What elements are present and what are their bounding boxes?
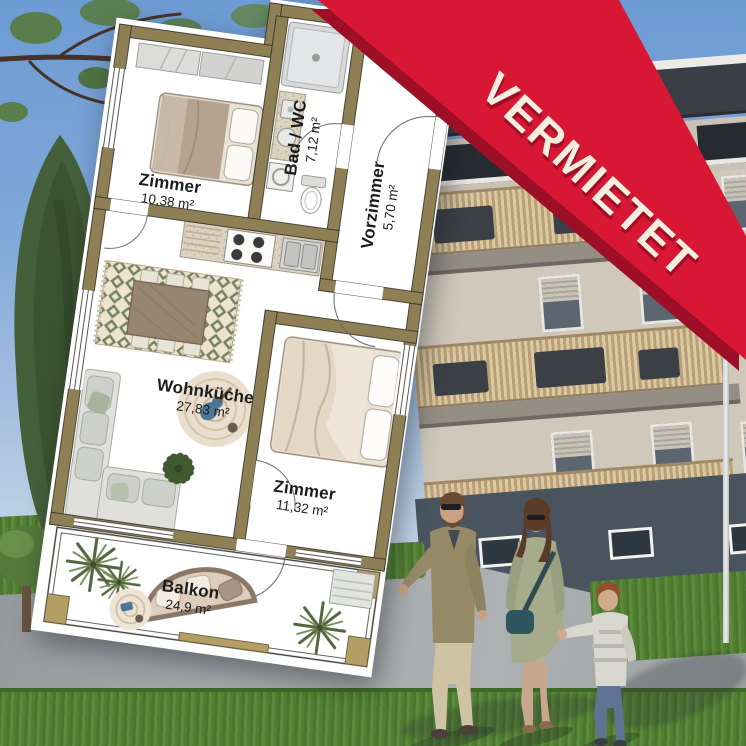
man-figure [398,492,487,739]
lamp-post [723,348,729,643]
boy-figure [557,582,636,746]
listing-image: Zimmer 10,38 m² Bad / WC 7,12 m² Vorzimm… [0,0,746,746]
bed-zimmer-2 [270,336,405,468]
storage-bench [329,569,375,609]
family-group [378,458,678,746]
woman-figure [506,498,564,733]
shower [281,22,351,94]
bed-zimmer-1 [149,92,263,186]
dining-table-set [125,269,211,357]
